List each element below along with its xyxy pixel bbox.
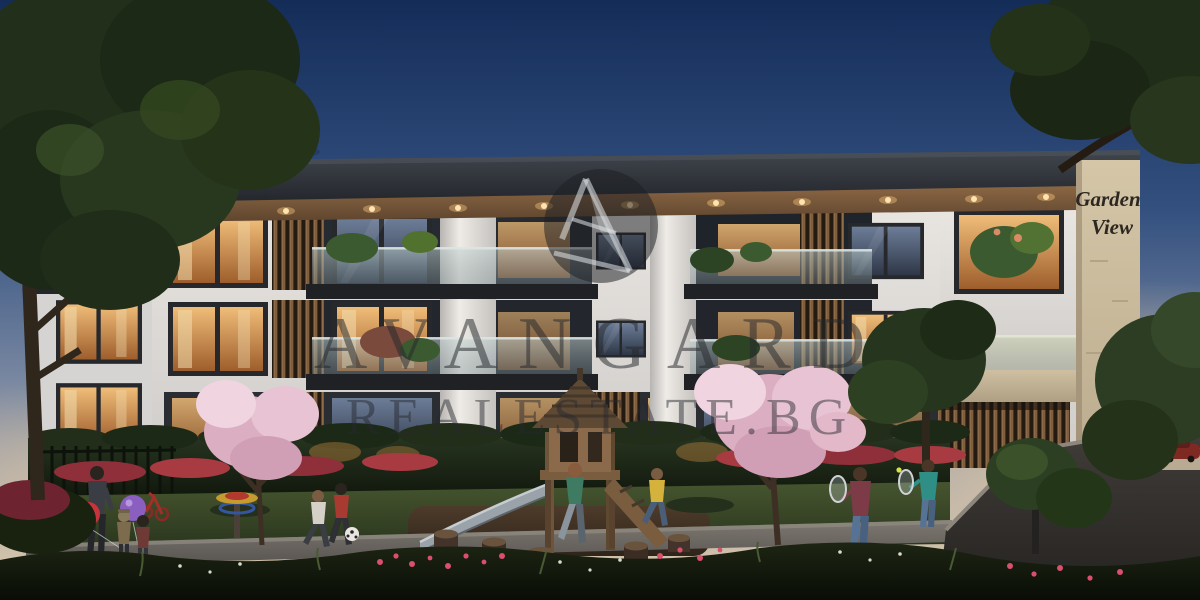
garden-view-sign-line2: View <box>1091 215 1134 239</box>
scene-canvas: Garden View <box>0 0 1200 600</box>
football <box>345 527 359 541</box>
architectural-render: Garden View <box>0 0 1200 600</box>
garden-view-sign-line1: Garden <box>1075 187 1140 211</box>
shuttlecock <box>896 467 901 472</box>
badminton-racket <box>830 476 846 502</box>
badminton-racket <box>899 470 913 494</box>
